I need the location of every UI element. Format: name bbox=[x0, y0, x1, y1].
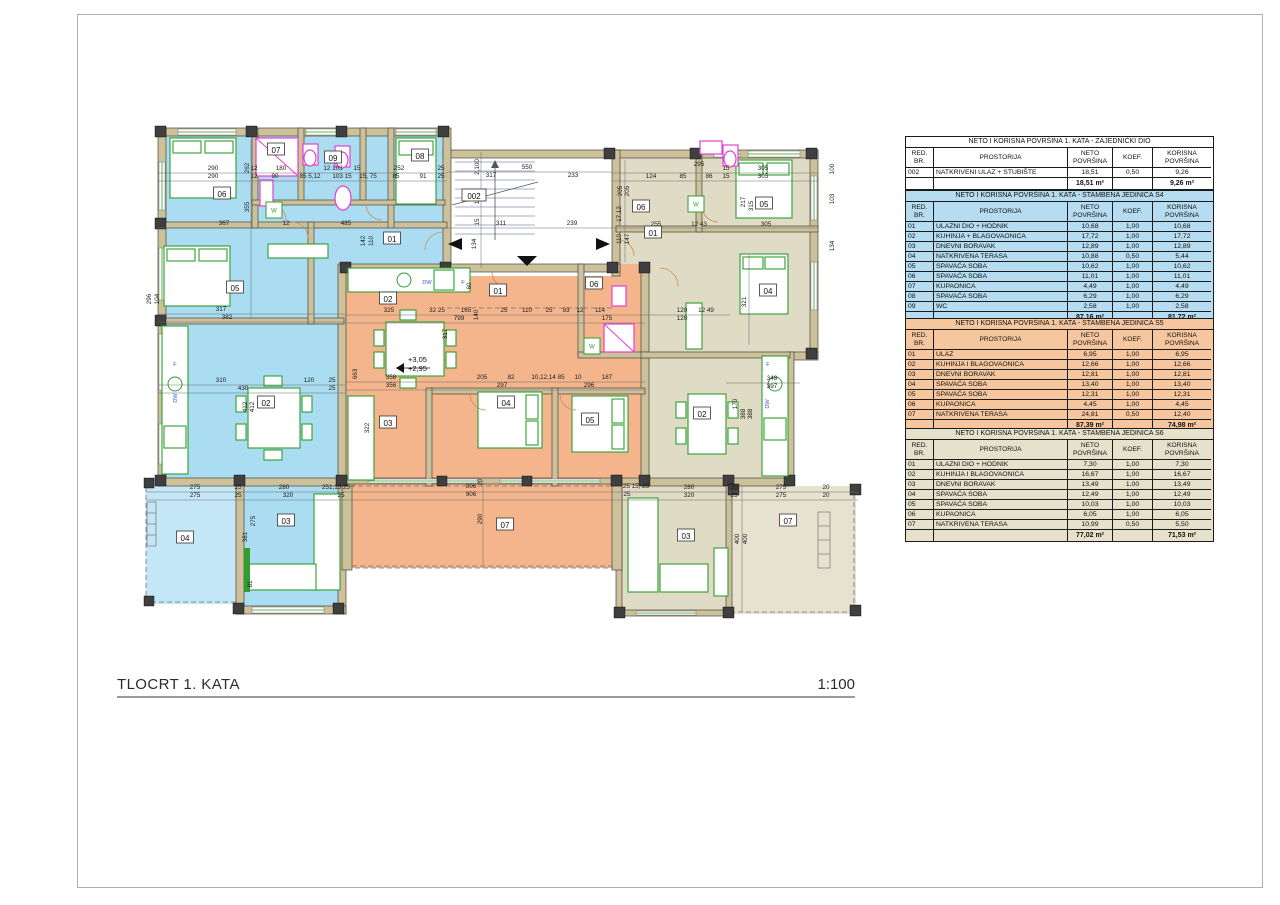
dimension-label: 25 15, 25 bbox=[623, 483, 650, 490]
dimension-label: 251,15,25 bbox=[322, 484, 351, 491]
dimension-label: 317 bbox=[486, 172, 497, 179]
appliance-label: F bbox=[766, 362, 770, 368]
dimension-label: 320 bbox=[283, 492, 294, 499]
table-header-cell: PROSTORIJA bbox=[934, 440, 1068, 460]
dimension-label: 82 bbox=[507, 374, 515, 381]
elevation-value: +3,05 bbox=[408, 355, 427, 364]
table-cell: SPAVAĆA SOBA bbox=[934, 380, 1068, 390]
header-line: POVRŠINA bbox=[1073, 450, 1107, 458]
table-cell: 17,72 bbox=[1153, 232, 1211, 242]
table-row: 04SPAVAĆA SOBA13,401,0013,40 bbox=[906, 380, 1213, 390]
header-line: KOEF. bbox=[1123, 446, 1142, 454]
dimension-label: 134 bbox=[471, 238, 478, 249]
dimension-label: 305 bbox=[758, 165, 769, 172]
header-line: KOEF. bbox=[1123, 154, 1142, 162]
room-label: 03 bbox=[682, 532, 691, 541]
room-label: 04 bbox=[181, 534, 190, 543]
total-empty bbox=[1113, 530, 1153, 541]
table-cell: 11,01 bbox=[1153, 272, 1211, 282]
table-cell: 6,29 bbox=[1153, 292, 1211, 302]
table-cell: 12,66 bbox=[1068, 360, 1113, 370]
room-label: 08 bbox=[416, 152, 425, 161]
appliance-label: DW bbox=[765, 399, 771, 409]
table-cell: KUHINJA + BLAGOVAONICA bbox=[934, 232, 1068, 242]
dimension-label: 134 bbox=[829, 240, 836, 251]
table-cell: 05 bbox=[906, 500, 934, 510]
dimension-label: 358 bbox=[386, 374, 397, 381]
header-line: POVRŠINA bbox=[1165, 450, 1199, 458]
dimension-label: 356 bbox=[386, 382, 397, 389]
table-row: 002NATKRIVENI ULAZ + STUBIŠTE18,510,509,… bbox=[906, 168, 1213, 178]
table-cell: SPAVAĆA SOBA bbox=[934, 292, 1068, 302]
dimension-label: 275 bbox=[190, 492, 201, 499]
table-row: 06SPAVAĆA SOBA11,011,0011,01 bbox=[906, 272, 1213, 282]
table-cell: 10,99 bbox=[1068, 520, 1113, 530]
dimension-label: 120 bbox=[304, 377, 315, 384]
sink-icon bbox=[335, 186, 351, 210]
drawing-title: TLOCRT 1. KATA bbox=[117, 676, 240, 693]
header-line: KORISNA bbox=[1167, 150, 1197, 158]
dimension-label: 205 bbox=[617, 185, 624, 196]
dimension-label: 388 bbox=[740, 408, 747, 419]
table-row: 09WC2,581,002,58 bbox=[906, 302, 1213, 312]
table-header-cell: KOEF. bbox=[1113, 202, 1153, 222]
table-row: 04NATKRIVENA TERASA10,880,505,44 bbox=[906, 252, 1213, 262]
dimension-label: 85 bbox=[392, 173, 400, 180]
header-line: NETO bbox=[1081, 332, 1099, 340]
dimension-label: 397 bbox=[767, 383, 778, 390]
table-cell: 06 bbox=[906, 510, 934, 520]
table-row: 03DNEVNI BORAVAK13,491,0013,49 bbox=[906, 480, 1213, 490]
dimension-label: 280 bbox=[279, 484, 290, 491]
dimension-label: 12 49 bbox=[698, 307, 714, 314]
table-cell: SPAVAĆA SOBA bbox=[934, 390, 1068, 400]
table-header-cell: KOEF. bbox=[1113, 440, 1153, 460]
dimension-label: 10,12,14 85 bbox=[531, 374, 565, 381]
table-cell: KUHINJA I BLAGOVAONICA bbox=[934, 470, 1068, 480]
room-label: 02 bbox=[262, 399, 271, 408]
header-line: KOEF. bbox=[1123, 208, 1142, 216]
table-total-row: 77,02 m²71,53 m² bbox=[906, 530, 1213, 541]
table-cell: 6,95 bbox=[1068, 350, 1113, 360]
dimension-label: 381 bbox=[242, 531, 249, 542]
table-cell: 12,49 bbox=[1068, 490, 1113, 500]
header-line: RED. bbox=[912, 332, 928, 340]
dimension-label: 60 bbox=[466, 282, 473, 290]
dimension-label: 205 bbox=[477, 374, 488, 381]
table-cell: 1,00 bbox=[1113, 360, 1153, 370]
dimension-label: 12 bbox=[250, 173, 258, 180]
header-line: POVRŠINA bbox=[1165, 340, 1199, 348]
table-cell: 6,05 bbox=[1068, 510, 1113, 520]
table-cell: 13,49 bbox=[1153, 480, 1211, 490]
header-line: NETO bbox=[1081, 442, 1099, 450]
room-label: 03 bbox=[282, 517, 291, 526]
dimension-label: 187 bbox=[602, 374, 613, 381]
dimension-label: 103 15 bbox=[332, 173, 352, 180]
table-cell: 13,40 bbox=[1153, 380, 1211, 390]
total-empty bbox=[1113, 178, 1153, 189]
header-line: BR. bbox=[914, 450, 925, 458]
table-cell: 1,00 bbox=[1113, 242, 1153, 252]
table-cell: 0,50 bbox=[1113, 252, 1153, 262]
washing-machine-label: W bbox=[693, 203, 699, 209]
table-header-cell: RED.BR. bbox=[906, 148, 934, 168]
dimension-label: 412 bbox=[249, 401, 256, 412]
table-header-row: RED.BR.PROSTORIJANETOPOVRŠINAKOEF.KORISN… bbox=[906, 202, 1213, 222]
dimension-label: 400 bbox=[742, 533, 749, 544]
room-label: 05 bbox=[760, 200, 769, 209]
table-row: 01ULAZNI DIO + HODNIK7,301,007,30 bbox=[906, 460, 1213, 470]
dimension-label: 86 bbox=[705, 173, 713, 180]
room-label: 04 bbox=[764, 287, 773, 296]
table-header-cell: NETOPOVRŠINA bbox=[1068, 440, 1113, 460]
table-cell: NATKRIVENA TERASA bbox=[934, 252, 1068, 262]
header-line: BR. bbox=[914, 340, 925, 348]
dimension-label: 85 5,12 bbox=[299, 173, 321, 180]
room-label: 01 bbox=[388, 235, 397, 244]
table-cell: 10,68 bbox=[1153, 222, 1211, 232]
table-row: 03DNEVNI BORAVAK12,811,0012,81 bbox=[906, 370, 1213, 380]
table-cell: 16,67 bbox=[1153, 470, 1211, 480]
dimension-label: 20 bbox=[822, 484, 830, 491]
dimension-label: 120 bbox=[677, 307, 688, 314]
table-cell: 12,81 bbox=[1153, 370, 1211, 380]
table-cell: 12,89 bbox=[1153, 242, 1211, 252]
table-cell: 1,00 bbox=[1113, 510, 1153, 520]
dimension-label: 25 bbox=[437, 165, 445, 172]
room-label: 02 bbox=[698, 410, 707, 419]
dimension-label: 290 bbox=[477, 513, 484, 524]
dimension-label: 25 bbox=[337, 492, 345, 499]
dimension-label: 382 bbox=[222, 314, 233, 321]
table-cell: 07 bbox=[906, 410, 934, 420]
table-header-cell: KORISNAPOVRŠINA bbox=[1153, 440, 1211, 460]
total-neto: 18,51 m² bbox=[1068, 178, 1113, 189]
total-korisna: 9,26 m² bbox=[1153, 178, 1211, 189]
dimension-label: 275 bbox=[190, 484, 201, 491]
dimension-label: 275 bbox=[776, 484, 787, 491]
table-s5: NETO I KORISNA POVRŠINA 1. KATA - STAMBE… bbox=[905, 318, 1214, 432]
table-cell: 11,01 bbox=[1068, 272, 1113, 282]
table-cell: 16,67 bbox=[1068, 470, 1113, 480]
table-cell: 04 bbox=[906, 490, 934, 500]
table-cell: 10,03 bbox=[1153, 500, 1211, 510]
elevation-labels: +3,05+2,95 bbox=[408, 355, 427, 373]
table-cell: 1,00 bbox=[1113, 470, 1153, 480]
dimension-label: 12 bbox=[282, 220, 290, 227]
dimension-label: 93 bbox=[562, 307, 570, 314]
table-row: 07NATKRIVENA TERASA10,990,505,50 bbox=[906, 520, 1213, 530]
table-cell: ULAZNI DIO + HODNIK bbox=[934, 460, 1068, 470]
dimension-label: 296 bbox=[584, 382, 595, 389]
header-line: KORISNA bbox=[1167, 442, 1197, 450]
dimension-label: 310 bbox=[216, 377, 227, 384]
table-cell: 12,49 bbox=[1153, 490, 1211, 500]
dimension-label: 322 bbox=[364, 422, 371, 433]
table-header-row: RED.BR.PROSTORIJANETOPOVRŠINAKOEF.KORISN… bbox=[906, 440, 1213, 460]
table-row: 04SPAVAĆA SOBA12,491,0012,49 bbox=[906, 490, 1213, 500]
dimension-label: 25 bbox=[437, 173, 445, 180]
table-header-cell: PROSTORIJA bbox=[934, 202, 1068, 222]
table-cell: 06 bbox=[906, 272, 934, 282]
table-cell: 07 bbox=[906, 282, 934, 292]
table-cell: 10,62 bbox=[1068, 262, 1113, 272]
table-cell: NATKRIVENA TERASA bbox=[934, 520, 1068, 530]
table-row: 06KUPAONICA6,051,006,05 bbox=[906, 510, 1213, 520]
dimension-label: 320 bbox=[684, 492, 695, 499]
table-cell: NATKRIVENI ULAZ + STUBIŠTE bbox=[934, 168, 1068, 178]
dimension-label: 25 bbox=[623, 491, 631, 498]
table-cell: 0,50 bbox=[1113, 168, 1153, 178]
dimension-label: 317 bbox=[442, 328, 449, 339]
dimension-label: 280 bbox=[684, 484, 695, 491]
table-header-cell: RED.BR. bbox=[906, 440, 934, 460]
table-cell: KUPAONICA bbox=[934, 282, 1068, 292]
dimension-label: 15, 75 bbox=[359, 173, 377, 180]
table-cell: 1,00 bbox=[1113, 272, 1153, 282]
table-cell: 02 bbox=[906, 232, 934, 242]
table-cell: 4,49 bbox=[1153, 282, 1211, 292]
title-block: TLOCRT 1. KATA 1:100 bbox=[117, 672, 855, 698]
total-empty bbox=[934, 530, 1068, 541]
table-cell: 1,00 bbox=[1113, 350, 1153, 360]
dimension-label: 25 bbox=[234, 492, 242, 499]
dimension-label: 15 bbox=[474, 218, 481, 226]
table-title: NETO I KORISNA POVRŠINA 1. KATA - STAMBE… bbox=[906, 319, 1213, 330]
dimension-label: 25 bbox=[545, 307, 553, 314]
table-cell: 12,31 bbox=[1153, 390, 1211, 400]
dimension-label: 297 bbox=[497, 382, 508, 389]
table-cell: 01 bbox=[906, 460, 934, 470]
dimension-label: 430 bbox=[238, 385, 249, 392]
dimension-label: 217 bbox=[740, 196, 747, 207]
dimension-label: 2,100 bbox=[474, 159, 481, 175]
appliance-label: F bbox=[173, 362, 177, 368]
dimension-label: 252 bbox=[394, 165, 405, 172]
header-line: BR. bbox=[914, 158, 925, 166]
header-line: KORISNA bbox=[1167, 204, 1197, 212]
dimension-label: 85 bbox=[679, 173, 687, 180]
dimension-label: 120 bbox=[677, 315, 688, 322]
dimension-label: 550 bbox=[522, 164, 533, 171]
table-cell: 12,89 bbox=[1068, 242, 1113, 252]
dimension-label: 15 bbox=[722, 165, 730, 172]
table-s6: NETO I KORISNA POVRŠINA 1. KATA - STAMBE… bbox=[905, 428, 1214, 542]
table-header-cell: KORISNAPOVRŠINA bbox=[1153, 202, 1211, 222]
dimension-label: 262 bbox=[244, 162, 251, 173]
table-cell: 1,00 bbox=[1113, 370, 1153, 380]
dimension-label: 412 bbox=[242, 401, 249, 412]
table-cell: 05 bbox=[906, 262, 934, 272]
table-cell: 1,00 bbox=[1113, 302, 1153, 312]
table-cell: 7,30 bbox=[1068, 460, 1113, 470]
dimension-label: 124 bbox=[646, 173, 657, 180]
header-line: PROSTORIJA bbox=[979, 208, 1021, 216]
appliance-label: DW bbox=[173, 393, 179, 403]
table-row: 05SPAVAĆA SOBA10,621,0010,62 bbox=[906, 262, 1213, 272]
table-cell: 1,00 bbox=[1113, 480, 1153, 490]
table-cell: 12,66 bbox=[1153, 360, 1211, 370]
header-line: KORISNA bbox=[1167, 332, 1197, 340]
table-cell: 1,00 bbox=[1113, 390, 1153, 400]
room-label: 06 bbox=[218, 190, 227, 199]
header-line: RED. bbox=[912, 442, 928, 450]
table-cell: 06 bbox=[906, 400, 934, 410]
header-line: POVRŠINA bbox=[1073, 340, 1107, 348]
total-empty bbox=[906, 178, 934, 189]
dimension-label: 147 bbox=[624, 233, 631, 244]
table-header-row: RED.BR.PROSTORIJANETOPOVRŠINAKOEF.KORISN… bbox=[906, 330, 1213, 350]
table-cell: 09 bbox=[906, 302, 934, 312]
table-cell: 10,62 bbox=[1153, 262, 1211, 272]
dimension-label: 799 bbox=[454, 315, 465, 322]
dimension-label: 25 bbox=[328, 385, 336, 392]
header-line: POVRŠINA bbox=[1073, 212, 1107, 220]
table-header-cell: KOEF. bbox=[1113, 148, 1153, 168]
room-label: 02 bbox=[384, 295, 393, 304]
dimension-label: 25 bbox=[730, 484, 738, 491]
table-row: 02KUHINJA + BLAGOVAONICA17,721,0017,72 bbox=[906, 232, 1213, 242]
table-cell: 12,31 bbox=[1068, 390, 1113, 400]
sink-icon bbox=[700, 141, 722, 154]
table-cell: DNEVNI BORAVAK bbox=[934, 370, 1068, 380]
dimension-label: 12 103 bbox=[323, 165, 343, 172]
table-cell: 04 bbox=[906, 252, 934, 262]
table-row: 02KUHINJA I BLAGOVAONICA12,661,0012,66 bbox=[906, 360, 1213, 370]
room-label: 05 bbox=[586, 416, 595, 425]
dimension-label: 485 bbox=[341, 220, 352, 227]
table-row: 02KUHINJA I BLAGOVAONICA16,671,0016,67 bbox=[906, 470, 1213, 480]
toilet-icon bbox=[612, 286, 626, 306]
table-cell: 13,49 bbox=[1068, 480, 1113, 490]
appliance-label: F bbox=[461, 280, 465, 286]
header-line: PROSTORIJA bbox=[979, 336, 1021, 344]
table-cell: 1,00 bbox=[1113, 222, 1153, 232]
dimension-label: 81 bbox=[247, 580, 254, 588]
dimension-label: 103 bbox=[829, 193, 836, 204]
table-header-cell: NETOPOVRŠINA bbox=[1068, 148, 1113, 168]
table-cell: 1,00 bbox=[1113, 232, 1153, 242]
header-line: POVRŠINA bbox=[1073, 158, 1107, 166]
dimension-label: 317 bbox=[216, 306, 227, 313]
table-cell: 4,45 bbox=[1153, 400, 1211, 410]
table-cell: 03 bbox=[906, 370, 934, 380]
dimension-label: 15 bbox=[353, 165, 361, 172]
table-row: 05SPAVAĆA SOBA10,031,0010,03 bbox=[906, 500, 1213, 510]
table-cell: 12,81 bbox=[1068, 370, 1113, 380]
dimension-label: 90 bbox=[271, 173, 279, 180]
table-row: 08SPAVAĆA SOBA6,291,006,29 bbox=[906, 292, 1213, 302]
dimension-label: 400 bbox=[734, 533, 741, 544]
dimension-label: 906 bbox=[466, 491, 477, 498]
washing-machine-label: W bbox=[271, 209, 277, 215]
table-cell: 0,50 bbox=[1113, 410, 1153, 420]
dimension-label: 20 bbox=[477, 478, 484, 486]
dimension-label: 321 bbox=[741, 296, 748, 307]
dimension-label: 348 bbox=[767, 375, 778, 382]
table-cell: KUHINJA I BLAGOVAONICA bbox=[934, 360, 1068, 370]
header-line: RED. bbox=[912, 150, 928, 158]
table-cell: 7,30 bbox=[1153, 460, 1211, 470]
table-cell: 10,03 bbox=[1068, 500, 1113, 510]
table-cell: 12,40 bbox=[1153, 410, 1211, 420]
table-header-cell: NETOPOVRŠINA bbox=[1068, 202, 1113, 222]
dimension-label: 325 bbox=[384, 307, 395, 314]
table-zajednicki-dio: NETO I KORISNA POVRŠINA 1. KATA - ZAJEDN… bbox=[905, 136, 1214, 190]
table-row: 01ULAZ6,951,006,95 bbox=[906, 350, 1213, 360]
table-cell: 03 bbox=[906, 242, 934, 252]
header-line: RED. bbox=[912, 204, 928, 212]
dimension-label: 110 bbox=[368, 235, 375, 246]
drawing-scale: 1:100 bbox=[817, 676, 855, 693]
table-cell: 13,40 bbox=[1068, 380, 1113, 390]
dimension-label: 20 bbox=[822, 492, 830, 499]
table-header-cell: RED.BR. bbox=[906, 202, 934, 222]
table-cell: SPAVAĆA SOBA bbox=[934, 272, 1068, 282]
table-header-cell: RED.BR. bbox=[906, 330, 934, 350]
table-row: 03DNEVNI BORAVAK12,891,0012,89 bbox=[906, 242, 1213, 252]
dimension-label: 17,12 bbox=[616, 206, 623, 222]
room-label: 05 bbox=[231, 284, 240, 293]
dimension-label: 663 bbox=[352, 368, 359, 379]
table-cell: 01 bbox=[906, 222, 934, 232]
dimension-label: 175 bbox=[602, 315, 613, 322]
table-s4: NETO I KORISNA POVRŠINA 1. KATA - STAMBE… bbox=[905, 190, 1214, 324]
dimension-label: 239 bbox=[567, 220, 578, 227]
room-label: 04 bbox=[502, 399, 511, 408]
table-cell: 17,72 bbox=[1068, 232, 1113, 242]
table-title: NETO I KORISNA POVRŠINA 1. KATA - ZAJEDN… bbox=[906, 137, 1213, 148]
table-header-cell: NETOPOVRŠINA bbox=[1068, 330, 1113, 350]
table-header-cell: KORISNAPOVRŠINA bbox=[1153, 330, 1211, 350]
table-cell: 02 bbox=[906, 470, 934, 480]
table-cell: 08 bbox=[906, 292, 934, 302]
dimension-label: 25 bbox=[328, 377, 336, 384]
header-line: BR. bbox=[914, 212, 925, 220]
dimension-label: 110 bbox=[522, 307, 533, 314]
table-cell: 07 bbox=[906, 520, 934, 530]
total-neto: 77,02 m² bbox=[1068, 530, 1113, 541]
table-header-cell: KORISNAPOVRŠINA bbox=[1153, 148, 1211, 168]
dimension-label: 388 bbox=[747, 408, 754, 419]
dimension-label: 100 bbox=[829, 163, 836, 174]
room-label: 002 bbox=[467, 192, 481, 201]
dimension-label: 233 bbox=[568, 172, 579, 179]
table-cell: NATKRIVENA TERASA bbox=[934, 410, 1068, 420]
appliance-label: DW bbox=[422, 280, 432, 286]
table-cell: 002 bbox=[906, 168, 934, 178]
table-total-row: 18,51 m²9,26 m² bbox=[906, 178, 1213, 189]
dimension-label: 275 bbox=[250, 515, 257, 526]
dimension-label: 180 bbox=[276, 165, 287, 172]
room-label: 01 bbox=[494, 287, 503, 296]
room-label: 06 bbox=[637, 203, 646, 212]
dimension-label: 355 bbox=[244, 201, 251, 212]
header-line: POVRŠINA bbox=[1165, 158, 1199, 166]
table-cell: 1,00 bbox=[1113, 400, 1153, 410]
dimension-label: 296 bbox=[146, 293, 153, 304]
table-cell: 10,88 bbox=[1068, 252, 1113, 262]
total-empty bbox=[906, 530, 934, 541]
table-header-cell: PROSTORIJA bbox=[934, 330, 1068, 350]
table-cell: 1,00 bbox=[1113, 490, 1153, 500]
table-row: 01ULAZNI DIO + HODNIK10,681,0010,68 bbox=[906, 222, 1213, 232]
table-cell: 2,58 bbox=[1068, 302, 1113, 312]
room-label: 03 bbox=[384, 419, 393, 428]
dimension-label: 140 bbox=[473, 309, 480, 320]
table-header-cell: PROSTORIJA bbox=[934, 148, 1068, 168]
